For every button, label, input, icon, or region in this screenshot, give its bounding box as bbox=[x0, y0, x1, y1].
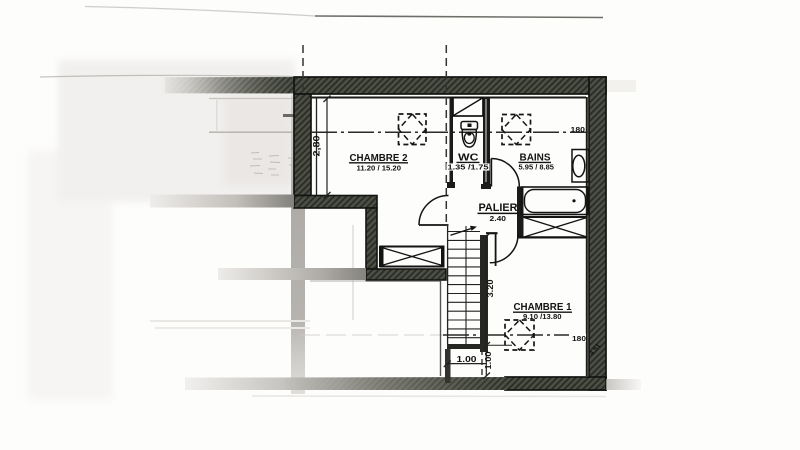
svg-text:180: 180 bbox=[571, 127, 586, 134]
svg-text:2,80: 2,80 bbox=[312, 135, 322, 156]
svg-text:WC: WC bbox=[458, 151, 479, 163]
svg-text:1.35 /1.75: 1.35 /1.75 bbox=[448, 165, 489, 172]
svg-text:9.10 /13.80: 9.10 /13.80 bbox=[523, 314, 562, 321]
svg-text:BAINS: BAINS bbox=[520, 151, 551, 163]
svg-text:5.95 / 8.85: 5.95 / 8.85 bbox=[519, 164, 555, 171]
svg-text:1.00: 1.00 bbox=[457, 355, 478, 364]
svg-text:180: 180 bbox=[572, 334, 586, 343]
svg-text:PALIER: PALIER bbox=[479, 202, 518, 214]
svg-text:3.20: 3.20 bbox=[486, 279, 495, 298]
svg-text:11.20 / 15.20: 11.20 / 15.20 bbox=[357, 164, 402, 173]
svg-text:1.00: 1.00 bbox=[484, 351, 493, 370]
svg-text:2.40: 2.40 bbox=[490, 214, 507, 223]
svg-text:CHAMBRE 2: CHAMBRE 2 bbox=[350, 152, 408, 164]
svg-text:CHAMBRE 1: CHAMBRE 1 bbox=[514, 301, 572, 313]
